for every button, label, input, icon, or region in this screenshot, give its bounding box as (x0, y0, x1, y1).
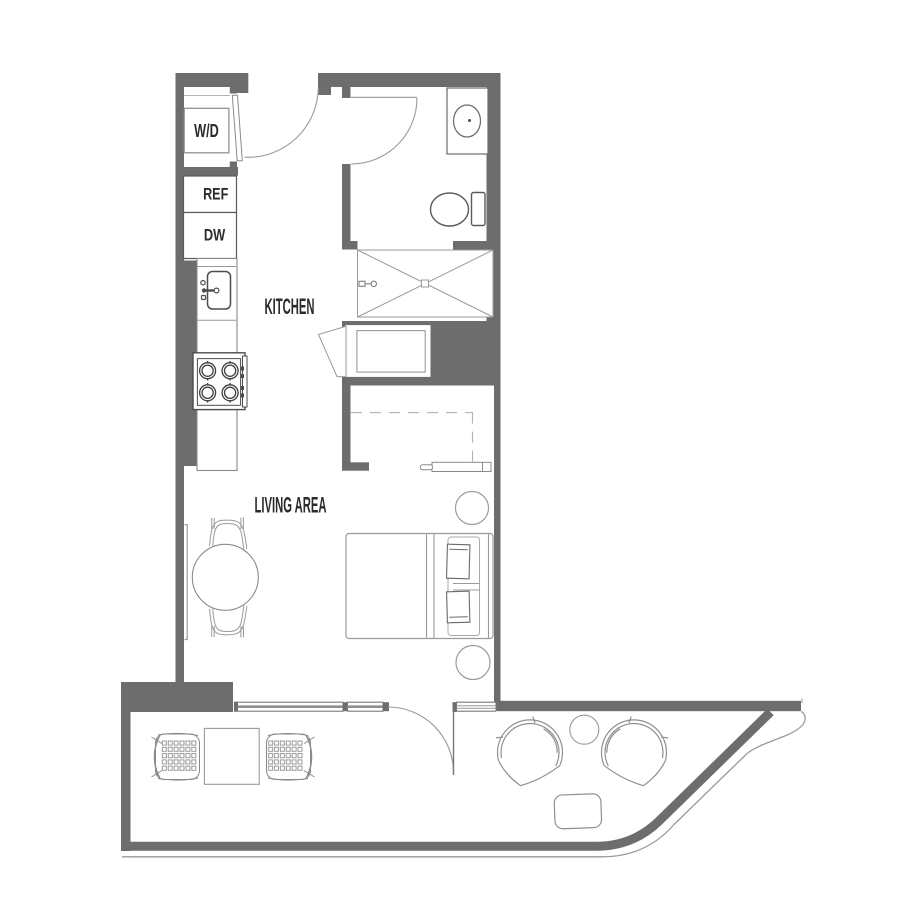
svg-text:W/D: W/D (194, 122, 219, 142)
svg-text:DW: DW (204, 227, 226, 245)
svg-text:REF: REF (203, 186, 228, 204)
svg-text:KITCHEN: KITCHEN (265, 294, 315, 319)
svg-text:LIVING AREA: LIVING AREA (254, 492, 326, 517)
